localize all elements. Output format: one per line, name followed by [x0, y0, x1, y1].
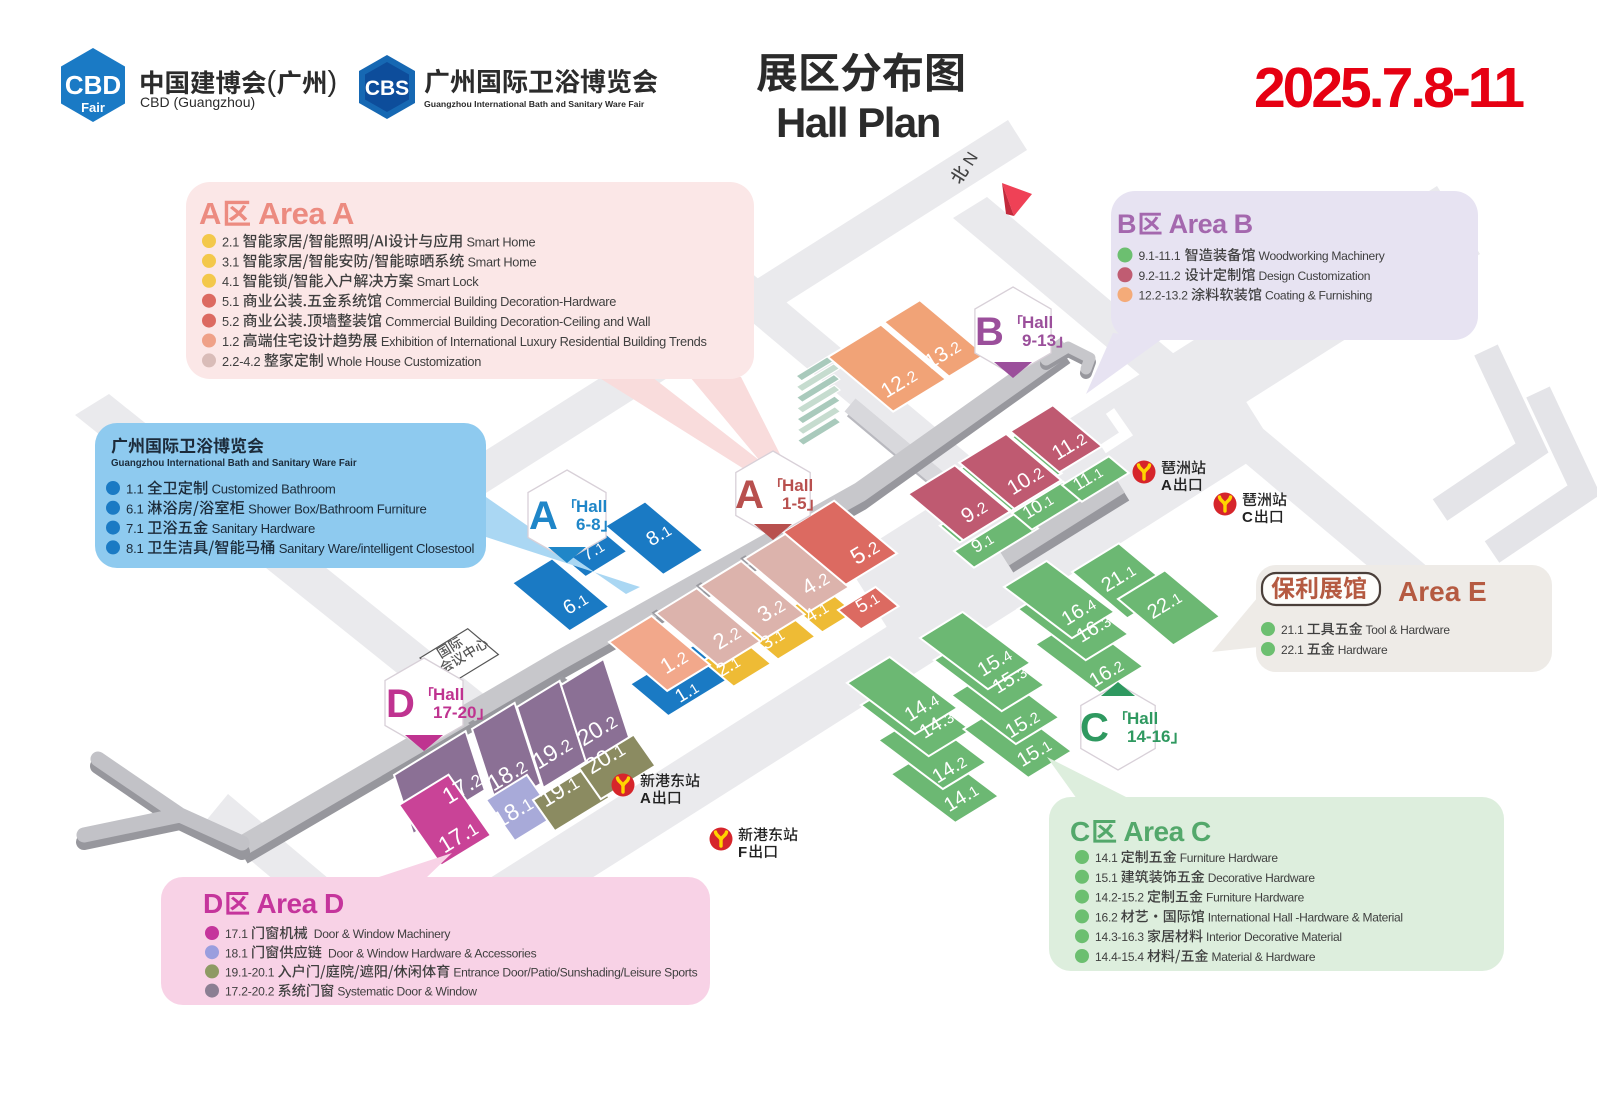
svg-text:Door & Window Hardware & Acces: Door & Window Hardware & Accessories [322, 946, 537, 960]
svg-text:2.2-4.2: 2.2-4.2 [222, 354, 264, 369]
svg-text:17.1: 17.1 [225, 927, 251, 941]
svg-text:9.1-11.1: 9.1-11.1 [1139, 249, 1184, 263]
svg-text:Hall: Hall [1022, 313, 1053, 332]
svg-text:1.2: 1.2 [222, 334, 243, 349]
svg-text:6-8: 6-8 [576, 515, 601, 534]
svg-text:Door & Window Machinery: Door & Window Machinery [308, 927, 452, 941]
svg-text:International Hall -Hardware &: International Hall -Hardware & Material [1205, 910, 1403, 924]
svg-text:Woodworking Machinery: Woodworking Machinery [1256, 249, 1386, 263]
svg-text:2.1: 2.1 [222, 234, 243, 249]
svg-text:Commercial Building Decoration: Commercial Building Decoration-Ceiling a… [382, 314, 650, 329]
svg-text:Hardware: Hardware [1335, 643, 1388, 657]
svg-text:7.1: 7.1 [126, 521, 147, 536]
svg-text:Sanitary Ware/intelligent Clos: Sanitary Ware/intelligent Closestool [275, 541, 474, 556]
svg-text:Commercial Building Decoration: Commercial Building Decoration-Hardware [382, 294, 616, 309]
svg-text:16.2: 16.2 [1095, 910, 1121, 924]
svg-text:Furniture Hardware: Furniture Hardware [1203, 891, 1305, 905]
svg-text:14-16: 14-16 [1127, 727, 1170, 746]
svg-text:2025.7.8-11: 2025.7.8-11 [1254, 56, 1524, 120]
svg-text:C: C [1242, 509, 1253, 526]
svg-text:17.2-20.2: 17.2-20.2 [225, 985, 277, 999]
svg-text:Hall Plan: Hall Plan [776, 99, 940, 146]
svg-text:Hall: Hall [576, 497, 607, 516]
svg-text:5.2: 5.2 [222, 314, 243, 329]
svg-text:Coating & Furnishing: Coating & Furnishing [1262, 289, 1372, 303]
svg-text:14.3-16.3: 14.3-16.3 [1095, 930, 1147, 944]
svg-text:12.2-13.2: 12.2-13.2 [1139, 289, 1191, 303]
svg-text:5.1: 5.1 [222, 294, 243, 309]
svg-text:CBD: CBD [65, 70, 121, 100]
svg-text:Area B: Area B [1163, 209, 1253, 239]
svg-text:A: A [1161, 477, 1172, 494]
svg-text:(: ( [267, 66, 277, 98]
svg-text:B: B [1117, 209, 1137, 239]
svg-text:): ) [328, 66, 338, 98]
svg-text:14.2-15.2: 14.2-15.2 [1095, 891, 1147, 905]
svg-text:A: A [529, 494, 558, 538]
svg-text:Shower Box/Bathroom Furniture: Shower Box/Bathroom Furniture [245, 501, 427, 516]
svg-text:B: B [975, 310, 1004, 354]
svg-text:9-13: 9-13 [1022, 331, 1056, 350]
svg-text:3.1: 3.1 [222, 254, 243, 269]
svg-text:15.1: 15.1 [1095, 871, 1121, 885]
svg-text:A: A [735, 473, 764, 517]
svg-text:Customized Bathroom: Customized Bathroom [208, 482, 336, 497]
svg-text:18.1: 18.1 [225, 946, 251, 960]
svg-text:A: A [640, 790, 651, 807]
svg-text:Smart Home: Smart Home [464, 254, 536, 269]
svg-text:1.1: 1.1 [126, 482, 147, 497]
svg-text:Decorative Hardware: Decorative Hardware [1205, 871, 1316, 885]
svg-text:Design Customization: Design Customization [1256, 269, 1371, 283]
svg-text:Hall: Hall [782, 476, 813, 495]
svg-text:D: D [203, 888, 223, 919]
svg-text:Systematic Door & Window: Systematic Door & Window [334, 985, 477, 999]
svg-text:17-20: 17-20 [433, 703, 476, 722]
svg-text:14.1: 14.1 [1095, 851, 1121, 865]
svg-text:9.2-11.2: 9.2-11.2 [1139, 269, 1184, 283]
svg-text:Material & Hardware: Material & Hardware [1209, 950, 1316, 964]
svg-text:Tool & Hardware: Tool & Hardware [1363, 623, 1451, 637]
svg-text:Whole House Customization: Whole House Customization [324, 354, 481, 369]
svg-text:Furniture Hardware: Furniture Hardware [1177, 851, 1279, 865]
svg-text:Area C: Area C [1117, 816, 1211, 847]
svg-text:Hall: Hall [433, 685, 464, 704]
svg-text:14.4-15.4: 14.4-15.4 [1095, 950, 1147, 964]
svg-text:19.1-20.1: 19.1-20.1 [225, 966, 277, 980]
svg-text:A: A [199, 196, 221, 231]
svg-text:CBS: CBS [365, 77, 409, 100]
svg-text:8.1: 8.1 [126, 541, 147, 556]
svg-text:22.1: 22.1 [1281, 643, 1307, 657]
svg-text:Smart Home: Smart Home [463, 234, 535, 249]
svg-text:Fair: Fair [81, 100, 105, 115]
svg-text:6.1: 6.1 [126, 501, 147, 516]
svg-text:Smart Lock: Smart Lock [413, 274, 479, 289]
svg-text:CBD (Guangzhou): CBD (Guangzhou) [140, 94, 255, 110]
svg-text:C: C [1070, 816, 1090, 847]
svg-text:F: F [738, 844, 747, 861]
svg-text:Hall: Hall [1127, 709, 1158, 728]
svg-text:Area D: Area D [250, 888, 344, 919]
svg-text:Interior Decorative Material: Interior Decorative Material [1203, 930, 1342, 944]
svg-text:Entrance Door/Patio/Sunshading: Entrance Door/Patio/Sunshading/Leisure S… [450, 966, 697, 980]
svg-text:Sanitary Hardware: Sanitary Hardware [208, 521, 315, 536]
svg-text:Guangzhou International Bath a: Guangzhou International Bath and Sanitar… [424, 99, 645, 109]
svg-text:C: C [1080, 706, 1109, 750]
svg-text:Exhibition of International Lu: Exhibition of International Luxury Resid… [378, 334, 707, 349]
svg-text:1-5: 1-5 [782, 494, 807, 513]
svg-text:Area A: Area A [251, 196, 354, 231]
svg-text:Area E: Area E [1398, 576, 1487, 607]
svg-text:D: D [386, 682, 415, 726]
svg-text:Guangzhou International Bath a: Guangzhou International Bath and Sanitar… [111, 458, 357, 469]
svg-text:4.1: 4.1 [222, 274, 243, 289]
svg-text:21.1: 21.1 [1281, 623, 1307, 637]
